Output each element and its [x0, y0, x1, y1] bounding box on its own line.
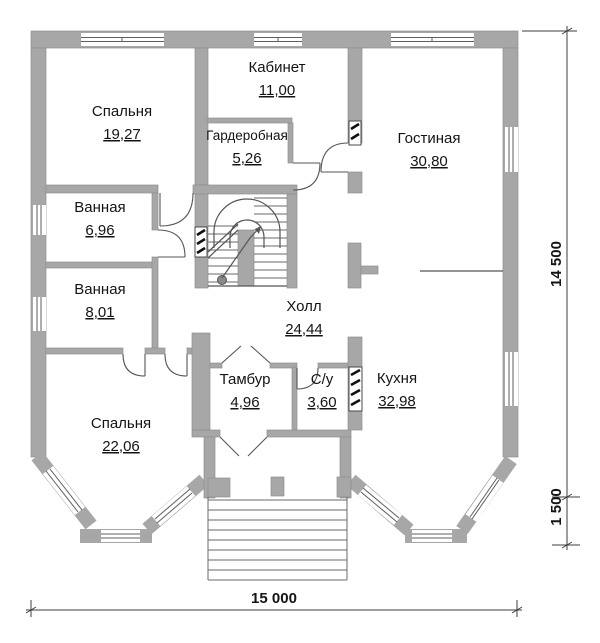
room-name-bedroom-2: Спальня	[91, 415, 151, 432]
room-name-living-room: Гостиная	[398, 130, 461, 147]
room-area-bedroom-1: 19,27	[103, 126, 141, 143]
dimension-right: 14 500 1 500	[522, 26, 580, 550]
room-area-living-room: 30,80	[410, 153, 448, 170]
vent-shaft-living	[349, 121, 361, 145]
door-entrance	[220, 437, 267, 456]
room-area-bedroom-2: 22,06	[102, 438, 140, 455]
room-name-vestibule: Тамбур	[220, 371, 271, 388]
window-bay-left-bottom	[101, 530, 140, 542]
window-top-bedroom1	[81, 33, 164, 46]
room-name-wc: С/у	[311, 371, 334, 388]
dimension-total-height: 14 500	[548, 241, 565, 287]
window-left-bathroom2	[33, 297, 46, 331]
porch	[204, 437, 351, 580]
door-bedroom1	[160, 193, 193, 226]
room-area-wc: 3,60	[307, 394, 336, 411]
window-bay-left-diag2	[155, 489, 192, 523]
room-name-kitchen: Кухня	[377, 370, 417, 387]
window-right-living	[505, 127, 518, 172]
room-name-wardrobe: Гардеробная	[206, 128, 288, 143]
window-bay-right-bottom	[412, 530, 452, 542]
room-area-bathroom-2: 8,01	[85, 304, 114, 321]
room-name-office: Кабинет	[248, 59, 305, 76]
room-name-hall: Холл	[286, 298, 321, 315]
room-name-bathroom-2: Ванная	[74, 281, 125, 298]
door-living	[321, 143, 348, 172]
room-area-office: 11,00	[259, 82, 295, 99]
porch-steps	[208, 497, 347, 580]
dimension-bottom: 15 000	[26, 590, 522, 617]
room-area-bathroom-1: 6,96	[85, 222, 114, 239]
floor-plan: Спальня 19,27 Кабинет 11,00 Гардеробная …	[0, 0, 600, 643]
window-bay-right-diag2	[470, 478, 499, 519]
door-vestibule-hall	[222, 346, 270, 363]
window-top-living	[391, 33, 474, 46]
window-right-kitchen	[505, 352, 518, 406]
window-bay-right-diag1	[361, 488, 399, 522]
door-bedroom2	[165, 354, 187, 376]
window-bay-left-diag1	[46, 469, 82, 512]
room-area-vestibule: 4,96	[230, 394, 259, 411]
door-bathroom1	[158, 230, 185, 257]
staircase	[208, 198, 287, 286]
dimension-porch-height: 1 500	[548, 488, 565, 526]
vent-shaft-stairs	[195, 227, 207, 257]
room-name-bathroom-1: Ванная	[74, 199, 125, 216]
room-area-kitchen: 32,98	[378, 393, 416, 410]
porch-column	[271, 477, 284, 496]
room-name-bedroom-1: Спальня	[92, 103, 152, 120]
window-left-bathroom1	[33, 205, 46, 235]
window-top-office	[254, 33, 302, 46]
door-bathroom2	[123, 354, 145, 376]
room-area-wardrobe: 5,26	[232, 150, 261, 167]
room-area-hall: 24,44	[285, 321, 323, 338]
vent-shaft-wc	[349, 367, 362, 411]
dimension-total-width: 15 000	[251, 590, 297, 607]
